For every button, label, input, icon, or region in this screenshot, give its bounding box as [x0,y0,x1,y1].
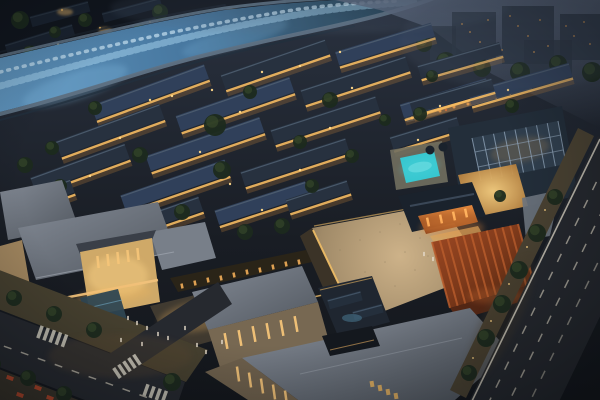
aerial-rendering [0,0,600,400]
layer-atmosphere [0,0,600,400]
vignette [0,0,600,400]
rendering-canvas [0,0,600,400]
